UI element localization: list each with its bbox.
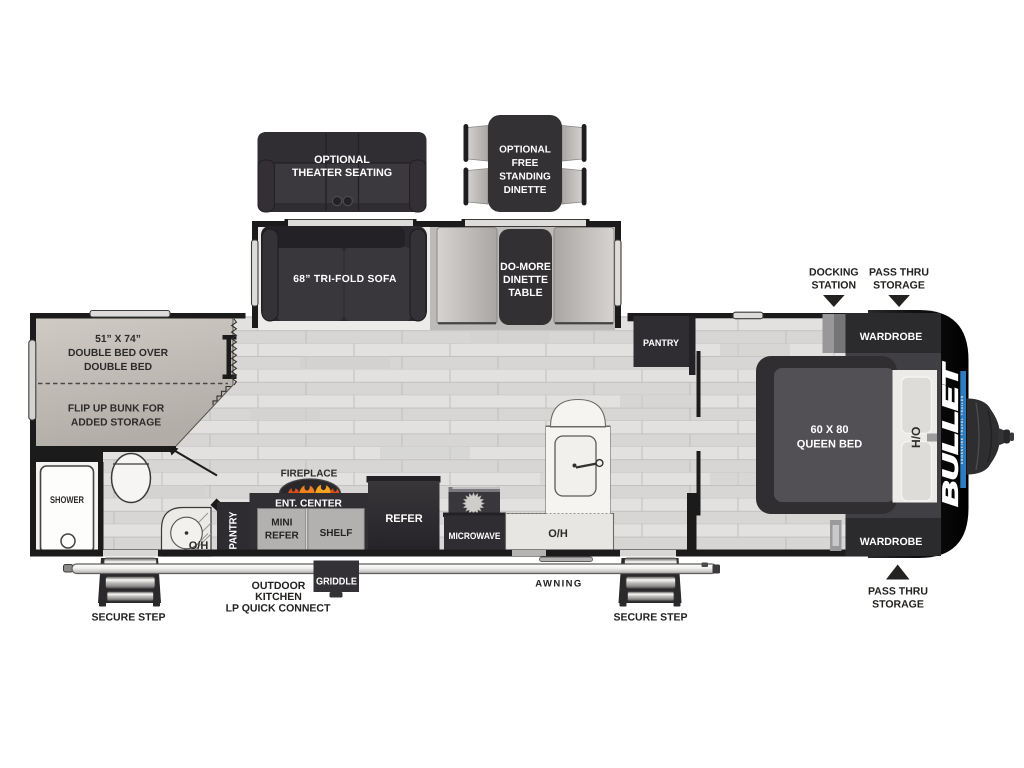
svg-text:AWNING: AWNING <box>535 579 582 590</box>
svg-text:TABLE: TABLE <box>508 287 542 299</box>
svg-text:MINI: MINI <box>271 518 292 529</box>
svg-text:DOCKING: DOCKING <box>809 267 859 279</box>
svg-text:DOUBLE BED: DOUBLE BED <box>84 362 152 373</box>
svg-text:PASS THRU: PASS THRU <box>868 586 928 598</box>
svg-text:GRIDDLE: GRIDDLE <box>316 577 357 588</box>
svg-text:SHELF: SHELF <box>320 528 353 539</box>
svg-text:DO-MORE: DO-MORE <box>500 261 551 273</box>
svg-text:68” TRI-FOLD SOFA: 68” TRI-FOLD SOFA <box>293 274 397 285</box>
svg-text:H/O: H/O <box>909 427 923 448</box>
svg-text:STANDING: STANDING <box>499 172 551 183</box>
svg-text:BULLET: BULLET <box>939 361 963 506</box>
svg-text:DINETTE: DINETTE <box>503 274 548 286</box>
svg-text:SHOWER: SHOWER <box>50 495 84 506</box>
svg-text:PANTRY: PANTRY <box>643 338 680 349</box>
svg-text:LP QUICK CONNECT: LP QUICK CONNECT <box>226 603 331 615</box>
svg-text:THEATER SEATING: THEATER SEATING <box>292 167 392 179</box>
svg-text:51” X 74”: 51” X 74” <box>95 334 141 345</box>
svg-text:SECURE STEP: SECURE STEP <box>613 612 687 624</box>
svg-text:WARDROBE: WARDROBE <box>860 536 922 548</box>
svg-text:DOUBLE BED OVER: DOUBLE BED OVER <box>68 348 169 359</box>
svg-text:STORAGE: STORAGE <box>873 280 925 292</box>
svg-text:ADDED STORAGE: ADDED STORAGE <box>71 418 161 429</box>
svg-text:STORAGE: STORAGE <box>872 599 924 611</box>
svg-text:PASS THRU: PASS THRU <box>869 267 929 279</box>
svg-text:DINETTE: DINETTE <box>504 185 547 196</box>
svg-text:KITCHEN: KITCHEN <box>255 591 302 603</box>
svg-text:STATION: STATION <box>812 280 857 292</box>
svg-text:CROSSFIRE TRAVEL TRAILER: CROSSFIRE TRAVEL TRAILER <box>960 395 964 464</box>
svg-text:OPTIONAL: OPTIONAL <box>499 145 551 156</box>
svg-text:WARDROBE: WARDROBE <box>860 331 922 343</box>
svg-text:OPTIONAL: OPTIONAL <box>314 154 370 166</box>
svg-text:QUEEN BED: QUEEN BED <box>797 439 862 451</box>
svg-text:REFER: REFER <box>265 531 300 542</box>
svg-text:ENT. CENTER: ENT. CENTER <box>275 499 342 510</box>
svg-text:60 X 80: 60 X 80 <box>811 424 849 436</box>
svg-text:FLIP UP BUNK FOR: FLIP UP BUNK FOR <box>68 404 165 415</box>
svg-text:MICROWAVE: MICROWAVE <box>449 531 501 541</box>
svg-text:SECURE STEP: SECURE STEP <box>91 612 165 624</box>
svg-text:PANTRY: PANTRY <box>228 512 240 550</box>
svg-text:FREE: FREE <box>512 158 539 169</box>
svg-text:REFER: REFER <box>385 513 422 525</box>
svg-text:FIREPLACE: FIREPLACE <box>281 469 338 480</box>
svg-text:O/H: O/H <box>548 528 568 540</box>
